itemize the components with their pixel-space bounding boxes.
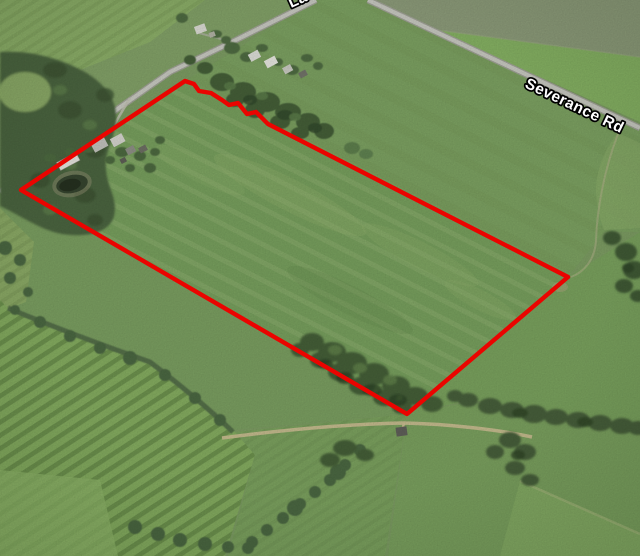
aerial-map-view[interactable]: Severance Rd La (0, 0, 640, 556)
aerial-imagery: Severance Rd La (0, 0, 640, 556)
